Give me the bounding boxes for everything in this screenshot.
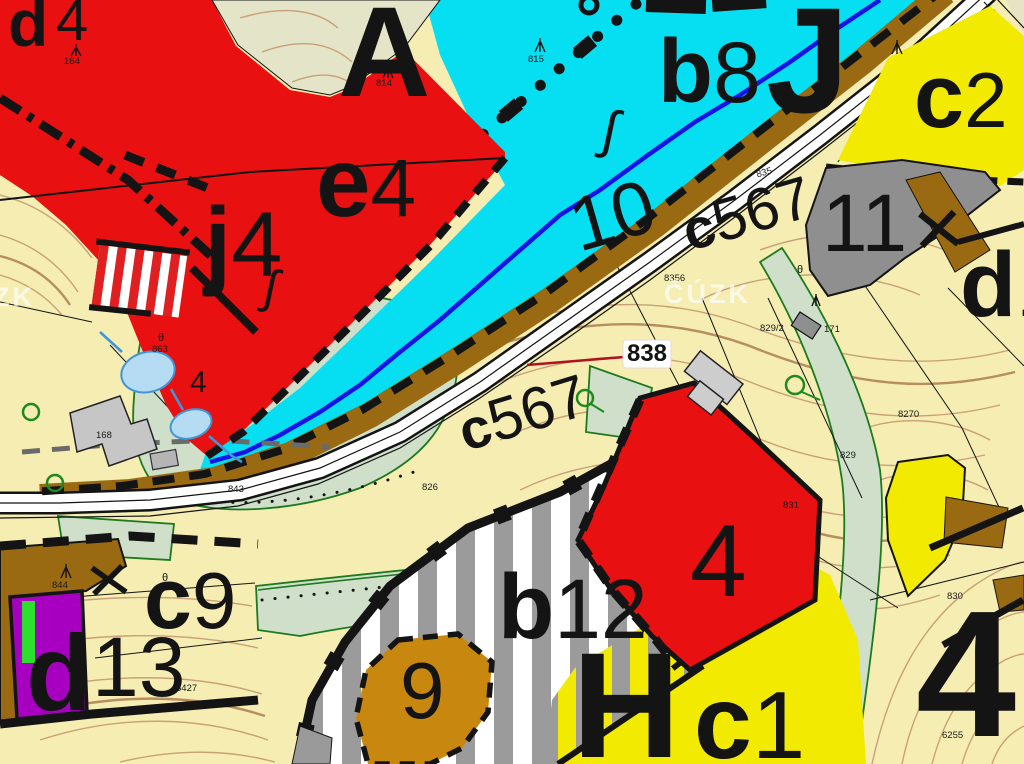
parcel-number: 830	[947, 591, 963, 602]
theta-symbol: θ	[158, 332, 164, 344]
parcel-number: 6255	[942, 730, 963, 741]
zone-label-4-big: 4	[916, 574, 1016, 764]
structure-block	[646, 0, 707, 14]
zone-label-A: A	[338, 0, 430, 124]
parcel-number: 826	[422, 482, 438, 493]
zone-label-part: j	[202, 187, 231, 297]
zone-label-part: e	[316, 127, 371, 237]
zone-redwhite-hatch[interactable]	[87, 239, 190, 319]
zone-label-d4: d4	[8, 0, 88, 60]
zone-label-9: 9	[400, 646, 445, 735]
zone-label-part: 1	[752, 672, 805, 764]
parcel-number: 168	[96, 430, 112, 441]
parcel-number: 815	[528, 54, 544, 65]
zone-label-part: d	[960, 234, 1016, 336]
zone-label-part: b	[498, 556, 554, 658]
callout-text: 838	[627, 340, 667, 367]
zone-label-part: 4	[56, 0, 88, 53]
parcel-number: 8270	[898, 409, 919, 420]
zone-label-part: 2	[964, 56, 1007, 144]
zone-label-part: 4	[231, 194, 282, 296]
zoning-map-canvas[interactable]: θ θ θ ∫ ∫ 4 d4 A b8 J c2 e4 j4 10 c567 1…	[0, 0, 1024, 764]
parcel-number: 831	[783, 500, 799, 511]
parcel-number: 814	[376, 78, 392, 89]
zone-label-j4: j4	[202, 187, 282, 297]
parcel-number: 829	[840, 450, 856, 461]
zone-label-e4: e4	[316, 127, 416, 237]
zone-label-part: d	[26, 612, 92, 733]
parcel-number: 171	[824, 324, 840, 335]
green-symbol: 4	[190, 366, 207, 399]
parcel-number: 829/2	[760, 323, 784, 334]
zone-label-H: H	[572, 621, 680, 764]
parcel-number: 844	[52, 580, 68, 591]
parcel-number: 843	[228, 484, 244, 495]
zone-label-part: 8	[713, 25, 761, 121]
zone-label-part: 13	[92, 620, 185, 714]
parcel-number: 863	[152, 344, 168, 355]
zone-label-part: 1	[1016, 240, 1024, 334]
parcel-number: 8427	[176, 683, 197, 694]
cuzk-watermark: ČÚZK	[664, 278, 751, 309]
parcel-number: 164	[64, 56, 80, 67]
zone-label-c2: c2	[914, 47, 1007, 147]
zone-label-part: d	[8, 0, 48, 60]
zone-label-part: 9	[192, 556, 237, 645]
zone-label-d1: d1	[960, 234, 1024, 336]
theta-symbol: θ	[797, 264, 803, 276]
zone-label-J: J	[766, 0, 849, 144]
map-viewport[interactable]: θ θ θ ∫ ∫ 4 d4 A b8 J c2 e4 j4 10 c567 1…	[0, 0, 1024, 764]
zone-label-c1: c1	[694, 665, 805, 764]
zone-label-part: c	[694, 665, 752, 764]
zone-label-4: 4	[690, 504, 747, 618]
zone-label-11: 11	[822, 178, 907, 269]
zone-label-part: b	[658, 22, 713, 122]
zone-label-part: 4	[371, 143, 417, 234]
zone-label-part: c	[914, 47, 964, 147]
zone-label-b8: b8	[658, 22, 761, 122]
cuzk-watermark-partial: ČÚZK	[0, 281, 35, 312]
